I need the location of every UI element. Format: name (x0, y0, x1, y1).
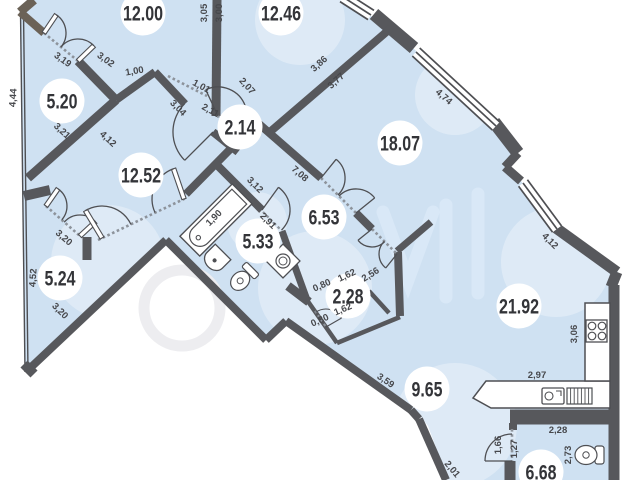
svg-text:3,00: 3,00 (214, 4, 225, 23)
svg-text:5.33: 5.33 (243, 230, 274, 253)
svg-text:2,28: 2,28 (549, 425, 568, 436)
svg-text:9.65: 9.65 (412, 378, 443, 401)
svg-text:2,97: 2,97 (528, 370, 547, 381)
svg-text:3,06: 3,06 (569, 325, 580, 344)
svg-text:2.14: 2.14 (225, 116, 256, 139)
svg-text:5.20: 5.20 (47, 90, 78, 113)
svg-text:4,44: 4,44 (7, 88, 19, 108)
svg-text:4,52: 4,52 (27, 268, 39, 287)
svg-text:3,05: 3,05 (199, 3, 210, 22)
svg-text:6.68: 6.68 (526, 461, 557, 480)
svg-text:12.52: 12.52 (121, 164, 161, 187)
svg-text:1,27: 1,27 (509, 440, 520, 459)
svg-text:12.46: 12.46 (261, 2, 301, 25)
svg-text:21.92: 21.92 (499, 295, 539, 318)
svg-text:2,73: 2,73 (563, 446, 574, 465)
svg-text:12.00: 12.00 (123, 2, 163, 25)
svg-text:18.07: 18.07 (380, 132, 420, 155)
svg-text:1,66: 1,66 (493, 436, 504, 455)
svg-text:6.53: 6.53 (309, 206, 340, 229)
svg-text:5.24: 5.24 (45, 267, 76, 290)
